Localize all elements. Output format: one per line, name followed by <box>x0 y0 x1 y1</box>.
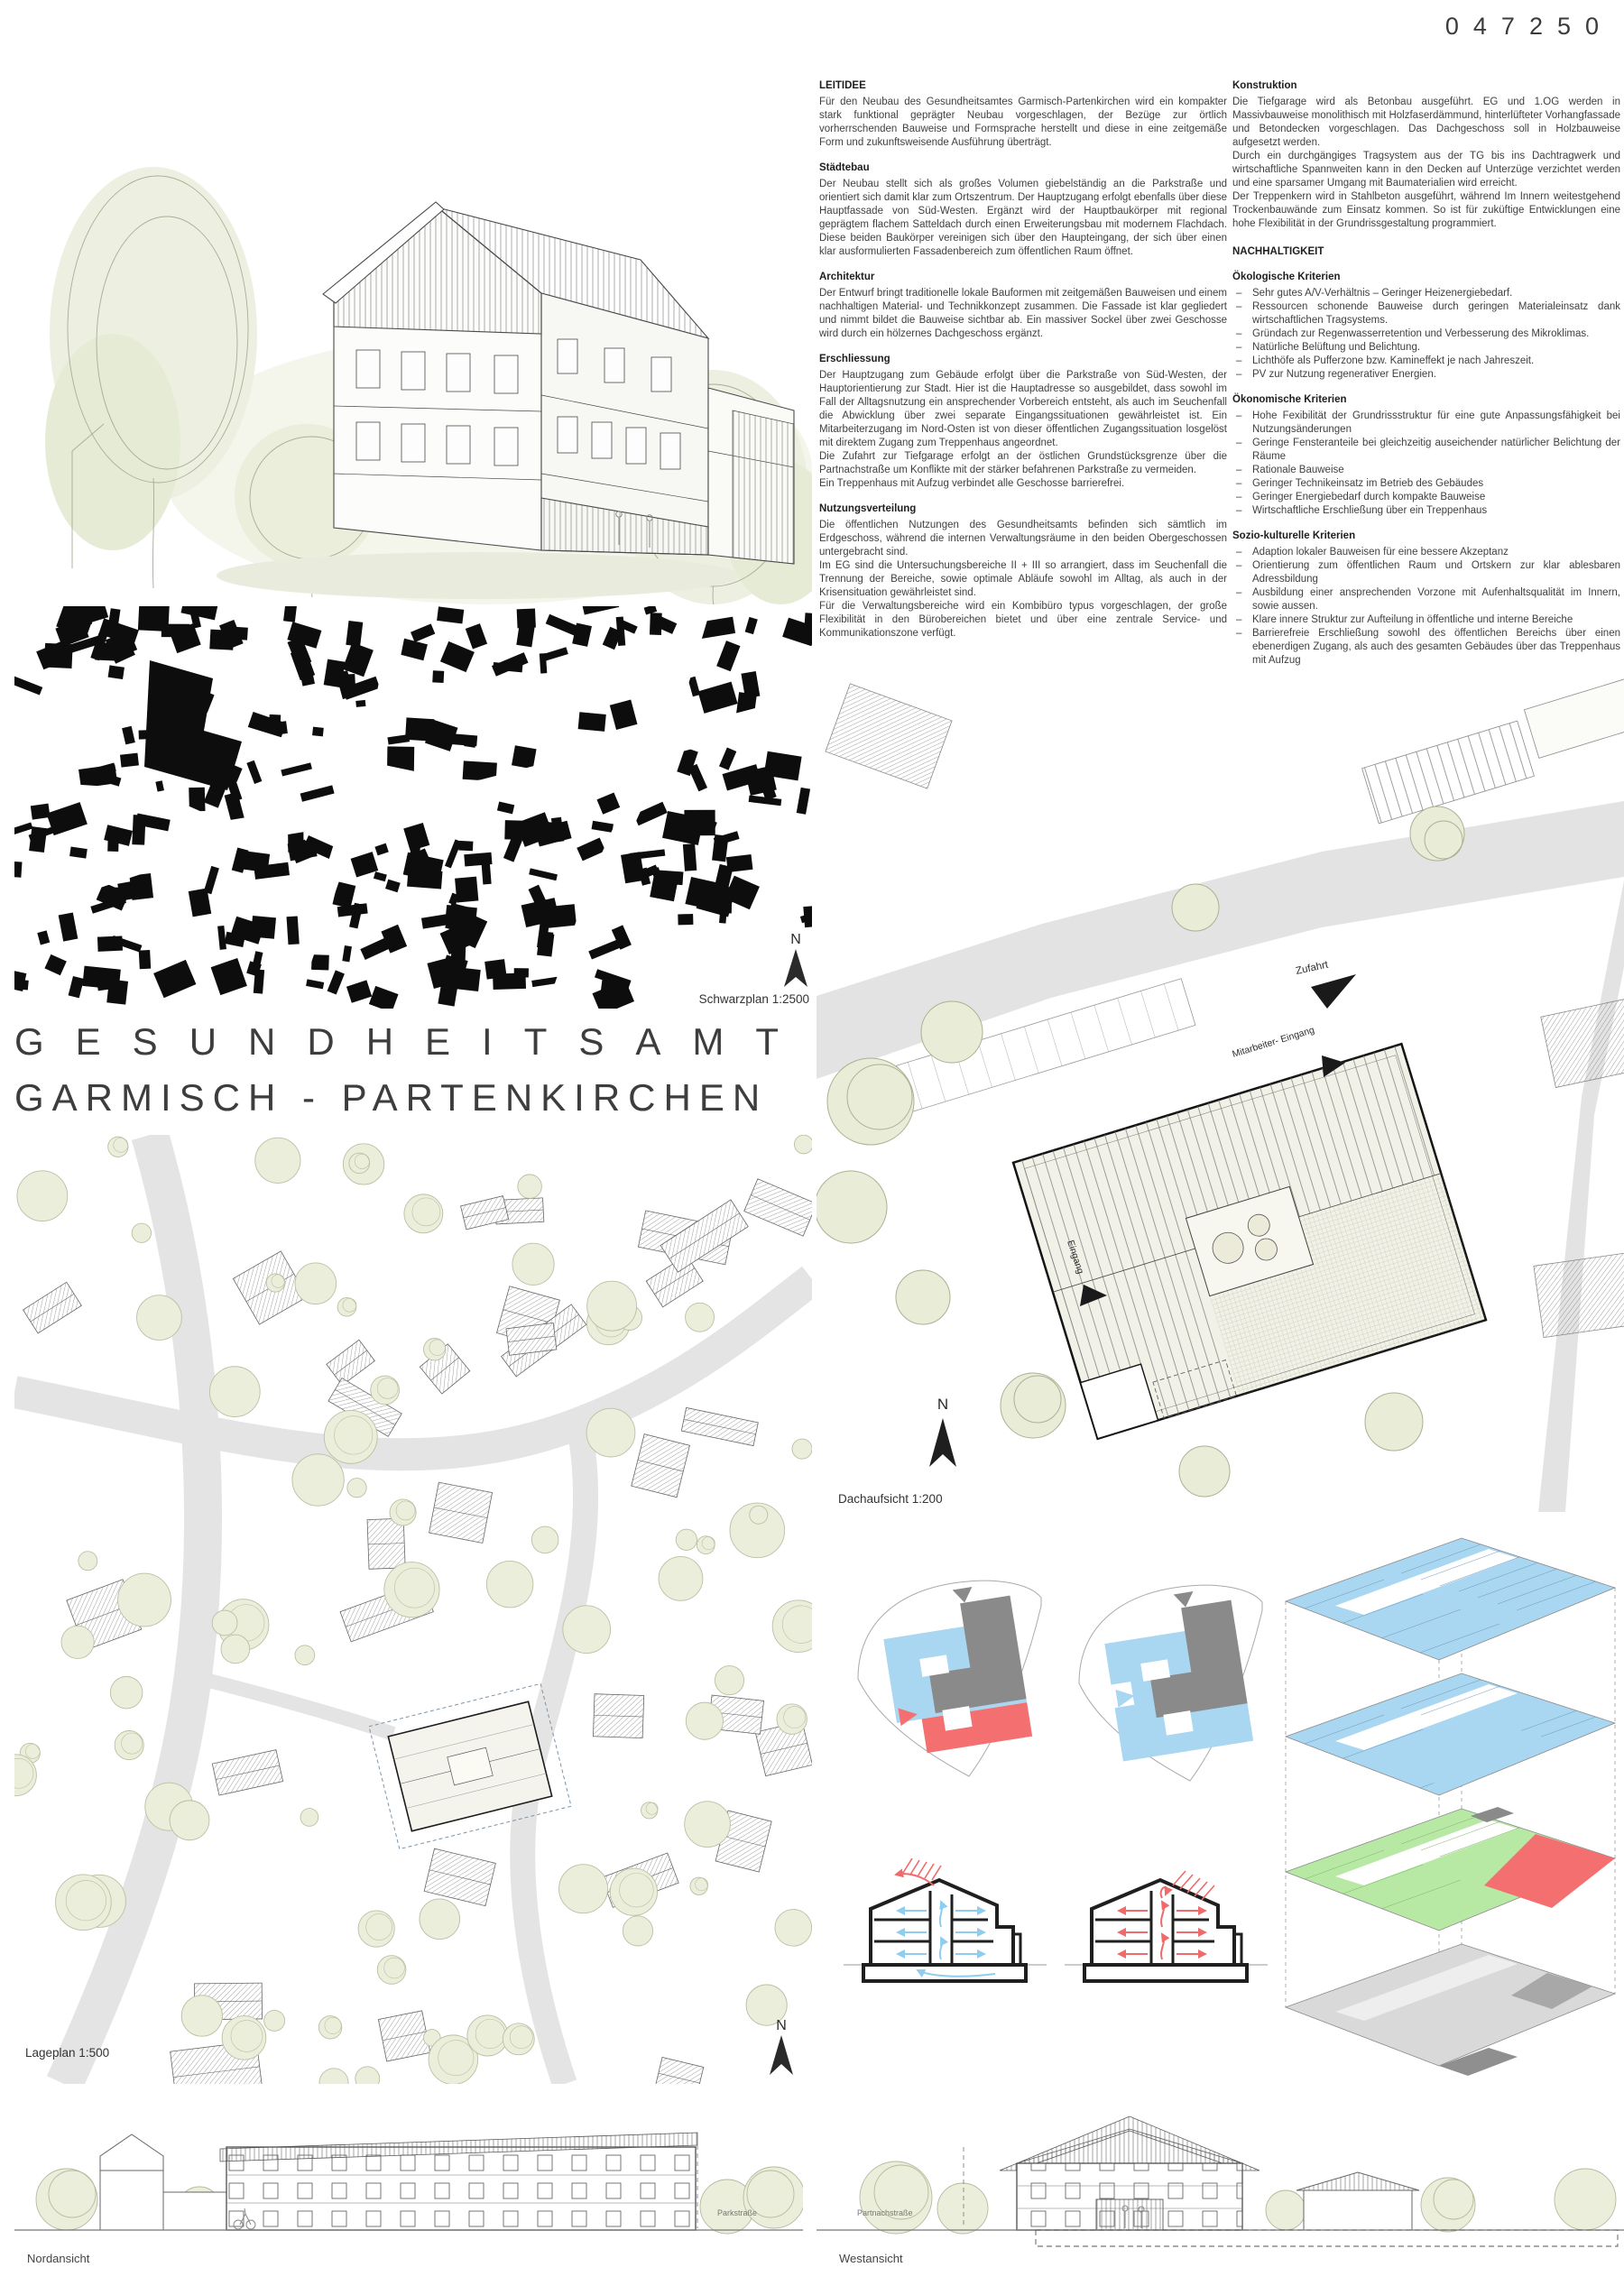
section-paragraph: Für den Neubau des Gesundheitsamtes Garm… <box>819 96 1227 150</box>
schwarzplan-caption: Schwarzplan 1:2500 <box>699 992 809 1006</box>
section-erschliessung: Erschliessung Der Hauptzugang zum Gebäud… <box>819 353 1227 491</box>
left-house <box>100 2134 226 2230</box>
section-outline <box>1084 1880 1247 1981</box>
nordansicht-elevation <box>14 2093 803 2255</box>
bullet-item: Ausbildung einer ansprechenden Vorzone m… <box>1232 586 1620 613</box>
section-paragraph: Der Entwurf bringt traditionelle lokale … <box>819 287 1227 341</box>
north-arrow-schwarzplan: N <box>784 932 807 987</box>
label-mitarbeiter-eingang: Mitarbeiter- Eingang <box>1231 1025 1345 1077</box>
section-heading: Nutzungsverteilung <box>819 502 1227 516</box>
section-architektur: Architektur Der Entwurf bringt tradition… <box>819 271 1227 341</box>
section-nachhaltigkeit: NACHHALTIGKEIT <box>1232 245 1620 259</box>
bullet-item: PV zur Nutzung regenerativer Energien. <box>1232 368 1620 382</box>
zufahrt-arrow-icon <box>1311 974 1356 1009</box>
section-heading: LEITIDEE <box>819 79 1227 93</box>
nordansicht-caption: Nordansicht <box>27 2252 89 2265</box>
section-paragraph: Der Neubau stellt sich als großes Volume… <box>819 178 1227 259</box>
main-building <box>1000 2116 1260 2230</box>
dachaufsicht-caption: Dachaufsicht 1:200 <box>838 1492 943 1506</box>
zufahrt-label: Zufahrt <box>1295 959 1330 976</box>
staff-arrow-gray-icon <box>1174 1591 1195 1608</box>
schwarzplan-map: N Schwarzplan 1:2500 <box>14 606 812 1009</box>
section-paragraph: Die öffentlichen Nutzungen des Gesundhei… <box>819 519 1227 559</box>
section-konstruktion: Konstruktion Die Tiefgarage wird als Bet… <box>1232 79 1620 231</box>
climate-section-summer <box>844 1858 1047 1994</box>
main-building <box>220 2133 697 2230</box>
scheme-diagram-seuchenfall <box>844 1565 1051 1786</box>
perspective-rendering <box>18 63 812 604</box>
main-building-roof <box>1013 1044 1486 1439</box>
section-heading: NACHHALTIGKEIT <box>1232 245 1620 259</box>
lageplan-map: N Lageplan 1:500 <box>14 1135 812 2084</box>
text-column-concept: LEITIDEE Für den Neubau des Gesundheitsa… <box>819 79 1227 652</box>
section-heading: Architektur <box>819 271 1227 284</box>
north-label: N <box>776 2018 787 2033</box>
section-leitidee: LEITIDEE Für den Neubau des Gesundheitsa… <box>819 79 1227 150</box>
section-paragraph: Der Hauptzugang zum Gebäude erfolgt über… <box>819 369 1227 450</box>
section-oekologische-kriterien: Ökologische Kriterien Sehr gutes A/V-Ver… <box>1232 271 1620 382</box>
section-outline <box>863 1880 1026 1981</box>
section-heading: Erschliessung <box>819 353 1227 366</box>
bullet-item: Lichthöfe als Pufferzone bzw. Kamineffek… <box>1232 355 1620 368</box>
bullet-item: Hohe Fexibilität der Grundrissstruktur f… <box>1232 410 1620 437</box>
floor-plate-eg <box>1286 1807 1615 1931</box>
airflow-arrows-red <box>1119 1887 1205 1959</box>
lageplan-caption: Lageplan 1:500 <box>25 2046 109 2060</box>
text-column-construction: Konstruktion Die Tiefgarage wird als Bet… <box>1232 79 1620 679</box>
section-paragraph: Im EG sind die Untersuchungsbereiche II … <box>819 559 1227 600</box>
section-heading: Konstruktion <box>1232 79 1620 93</box>
section-oekonomische-kriterien: Ökonomische Kriterien Hohe Fexibilität d… <box>1232 393 1620 518</box>
section-sozio-kulturelle-kriterien: Sozio-kulturelle Kriterien Adaption loka… <box>1232 530 1620 668</box>
climate-section-winter <box>1065 1858 1268 1994</box>
scheme-diagram-alltag <box>1065 1570 1272 1791</box>
road-partnachstrasse <box>1538 880 1624 1512</box>
partnachstrasse-label: Partnachstraße <box>857 2208 913 2217</box>
section-paragraph: Der Treppenkern wird in Stahlbeton ausge… <box>1232 190 1620 231</box>
north-label: N <box>937 1396 948 1413</box>
westansicht-elevation <box>817 2093 1624 2255</box>
section-heading: Ökonomische Kriterien <box>1232 393 1620 407</box>
outbuilding <box>1296 2172 1419 2230</box>
bullet-item: Geringe Fensteranteile bei gleichzeitig … <box>1232 437 1620 464</box>
section-paragraph: Ein Treppenhaus mit Aufzug verbindet all… <box>819 477 1227 491</box>
section-heading: Ökologische Kriterien <box>1232 271 1620 284</box>
section-nutzungsverteilung: Nutzungsverteilung Die öffentlichen Nutz… <box>819 502 1227 641</box>
mitarbeiter-eingang-label: Mitarbeiter- Eingang <box>1231 1025 1315 1060</box>
section-heading: Sozio-kulturelle Kriterien <box>1232 530 1620 543</box>
staff-arrow-gray-icon <box>953 1587 974 1604</box>
north-arrow-lageplan: N <box>770 2018 793 2075</box>
bullet-item: Geringer Technikeinsatz im Betrieb des G… <box>1232 477 1620 491</box>
bullet-item: Klare innere Struktur zur Aufteilung in … <box>1232 613 1620 627</box>
label-zufahrt: Zufahrt <box>1295 959 1356 1009</box>
title-line2: GARMISCH - PARTENKIRCHEN <box>14 1070 812 1126</box>
north-label: N <box>790 932 801 947</box>
bullet-item: Sehr gutes A/V-Verhältnis – Geringer Hei… <box>1232 287 1620 300</box>
title-line1: GESUNDHEITSAMT <box>14 1014 812 1070</box>
north-arrow-icon <box>929 1418 956 1467</box>
bullet-item: Ressourcen schonende Bauweise durch geri… <box>1232 300 1620 327</box>
north-arrow-icon <box>770 2035 793 2075</box>
bullet-item: Barrierefreie Erschließung sowohl des öf… <box>1232 627 1620 668</box>
bullet-item: Wirtschaftliche Erschließung über ein Tr… <box>1232 504 1620 518</box>
section-paragraph: Die Tiefgarage wird als Betonbau ausgefü… <box>1232 96 1620 150</box>
bullet-item: Geringer Energiebedarf durch kompakte Ba… <box>1232 491 1620 504</box>
exploded-axonometric <box>1281 1529 1622 2093</box>
bullet-item: Orientierung zum öffentlichen Raum und O… <box>1232 559 1620 586</box>
section-staedtebau: Städtebau Der Neubau stellt sich als gro… <box>819 161 1227 259</box>
bullet-item: Natürliche Belüftung und Belichtung. <box>1232 341 1620 355</box>
bullet-item: Rationale Bauweise <box>1232 464 1620 477</box>
bullet-item: Adaption lokaler Bauweisen für eine bess… <box>1232 546 1620 559</box>
floor-plate-tg <box>1286 1944 1615 2076</box>
north-arrow-dachaufsicht: N <box>929 1396 956 1467</box>
section-paragraph: Die Zufahrt zur Tiefgarage erfolgt an de… <box>819 450 1227 477</box>
section-paragraph: Durch ein durchgängiges Tragsystem aus d… <box>1232 150 1620 190</box>
parkstrasse-label: Parkstraße <box>717 2208 757 2217</box>
entry-number: 047250 <box>1445 13 1613 41</box>
north-arrow-icon <box>784 949 807 987</box>
tiefgarage-dashed-outline <box>1036 2230 1618 2246</box>
dachaufsicht-plan: Zufahrt Mitarbeiter- Eingang Eingang N D… <box>817 610 1624 1512</box>
bullet-item: Gründach zur Regenwasserretention und Ve… <box>1232 327 1620 341</box>
floor-plate-2og <box>1286 1538 1615 1660</box>
section-paragraph: Für die Verwaltungsbereiche wird ein Kom… <box>819 600 1227 641</box>
westansicht-caption: Westansicht <box>839 2252 903 2265</box>
project-title: GESUNDHEITSAMT GARMISCH - PARTENKIRCHEN <box>14 1014 812 1126</box>
section-heading: Städtebau <box>819 161 1227 175</box>
floor-plate-1og <box>1286 1673 1615 1795</box>
